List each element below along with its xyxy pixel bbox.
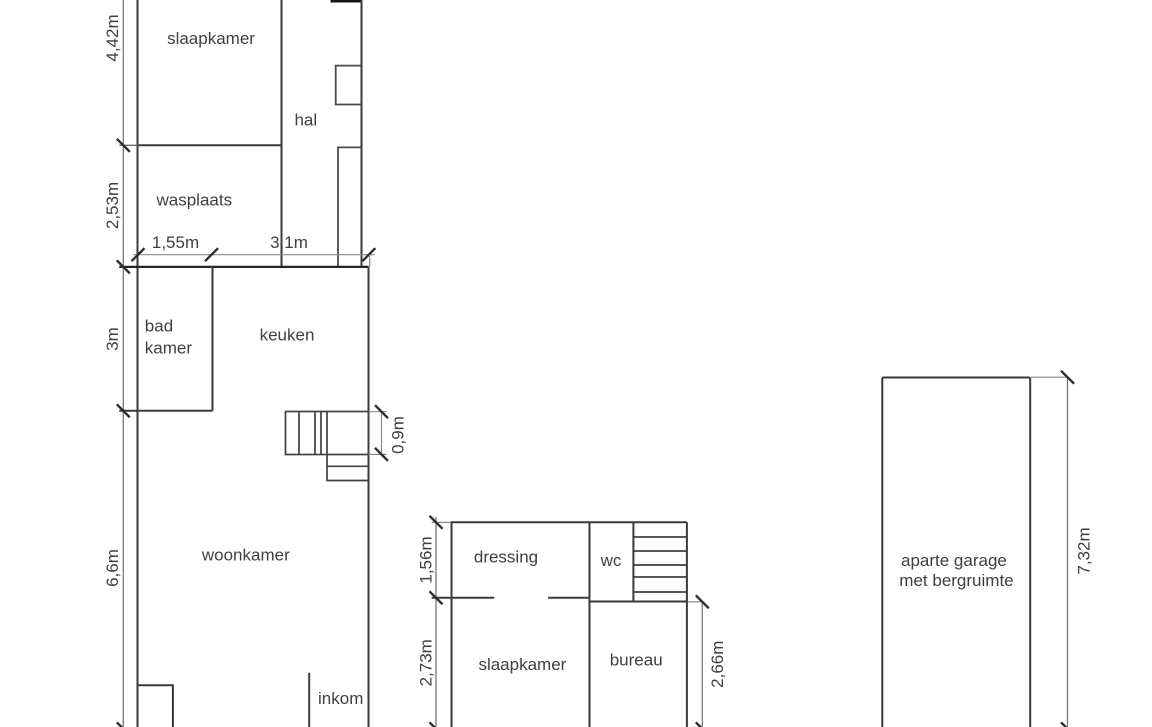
- svg-text:wasplaats: wasplaats: [155, 190, 232, 209]
- svg-text:2,66m: 2,66m: [708, 641, 727, 688]
- svg-text:3,1m: 3,1m: [270, 233, 308, 252]
- svg-text:bureau: bureau: [610, 651, 663, 670]
- svg-text:hal: hal: [294, 111, 317, 130]
- svg-text:0,9m: 0,9m: [389, 416, 408, 454]
- svg-text:6,6m: 6,6m: [103, 549, 122, 587]
- svg-text:1,56m: 1,56m: [417, 536, 436, 583]
- svg-text:2,73m: 2,73m: [417, 639, 436, 686]
- svg-text:1,55m: 1,55m: [152, 233, 199, 252]
- svg-text:slaapkamer: slaapkamer: [478, 655, 566, 674]
- svg-text:2,53m: 2,53m: [103, 182, 122, 229]
- svg-text:dressing: dressing: [474, 548, 538, 567]
- svg-text:aparte garage: aparte garage: [901, 551, 1007, 570]
- svg-text:keuken: keuken: [260, 326, 315, 345]
- svg-text:slaapkamer: slaapkamer: [167, 29, 255, 48]
- svg-text:3m: 3m: [103, 327, 122, 351]
- svg-text:met bergruimte: met bergruimte: [899, 571, 1013, 590]
- svg-text:inkom: inkom: [318, 689, 363, 708]
- svg-text:kamer: kamer: [145, 338, 193, 357]
- svg-text:7,32m: 7,32m: [1075, 527, 1094, 574]
- svg-text:woonkamer: woonkamer: [201, 546, 290, 565]
- svg-text:wc: wc: [600, 551, 622, 570]
- svg-text:bad: bad: [145, 316, 173, 335]
- svg-text:4,42m: 4,42m: [103, 14, 122, 61]
